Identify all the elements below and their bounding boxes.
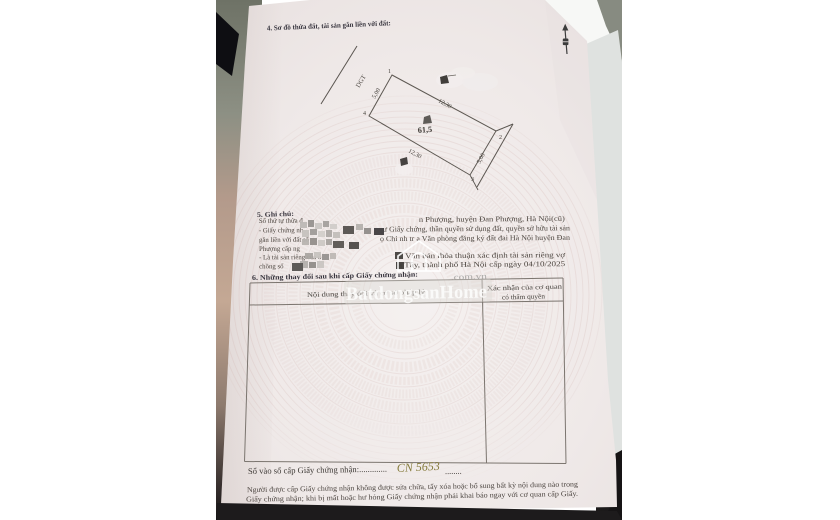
- svg-text:1: 1: [388, 69, 391, 75]
- svg-text:Số thứ tự thửa đ: Số thứ tự thửa đ: [259, 218, 304, 225]
- svg-text:CN 5653: CN 5653: [396, 459, 440, 475]
- svg-text:ọ Chỉ nh tr a Văn phòng đăng k: ọ Chỉ nh tr a Văn phòng đăng ký đất đai …: [380, 233, 570, 243]
- svg-text:2: 2: [499, 135, 502, 141]
- svg-text:3: 3: [471, 177, 474, 183]
- svg-text:có thẩm quyền: có thẩm quyền: [502, 293, 546, 301]
- svg-text:4: 4: [363, 111, 366, 117]
- svg-text:61,5: 61,5: [417, 125, 432, 135]
- svg-text:a Tây, thành phố Hà Nội cấp ng: a Tây, thành phố Hà Nội cấp ngày 04/10/2…: [398, 259, 565, 269]
- svg-text:n Phượng, huyện Đan Phượng, Hà: n Phượng, huyện Đan Phượng, Hà Nội(cũ): [419, 214, 566, 224]
- svg-text:BatdongsanHome: BatdongsanHome: [346, 282, 487, 305]
- svg-text:- Giấy chứng nh: - Giấy chứng nh: [259, 227, 304, 234]
- svg-text:Phượng cấp ng: Phượng cấp ng: [259, 246, 301, 253]
- svg-text:chồng số: chồng số: [259, 263, 284, 270]
- svg-text:........: ........: [445, 467, 462, 476]
